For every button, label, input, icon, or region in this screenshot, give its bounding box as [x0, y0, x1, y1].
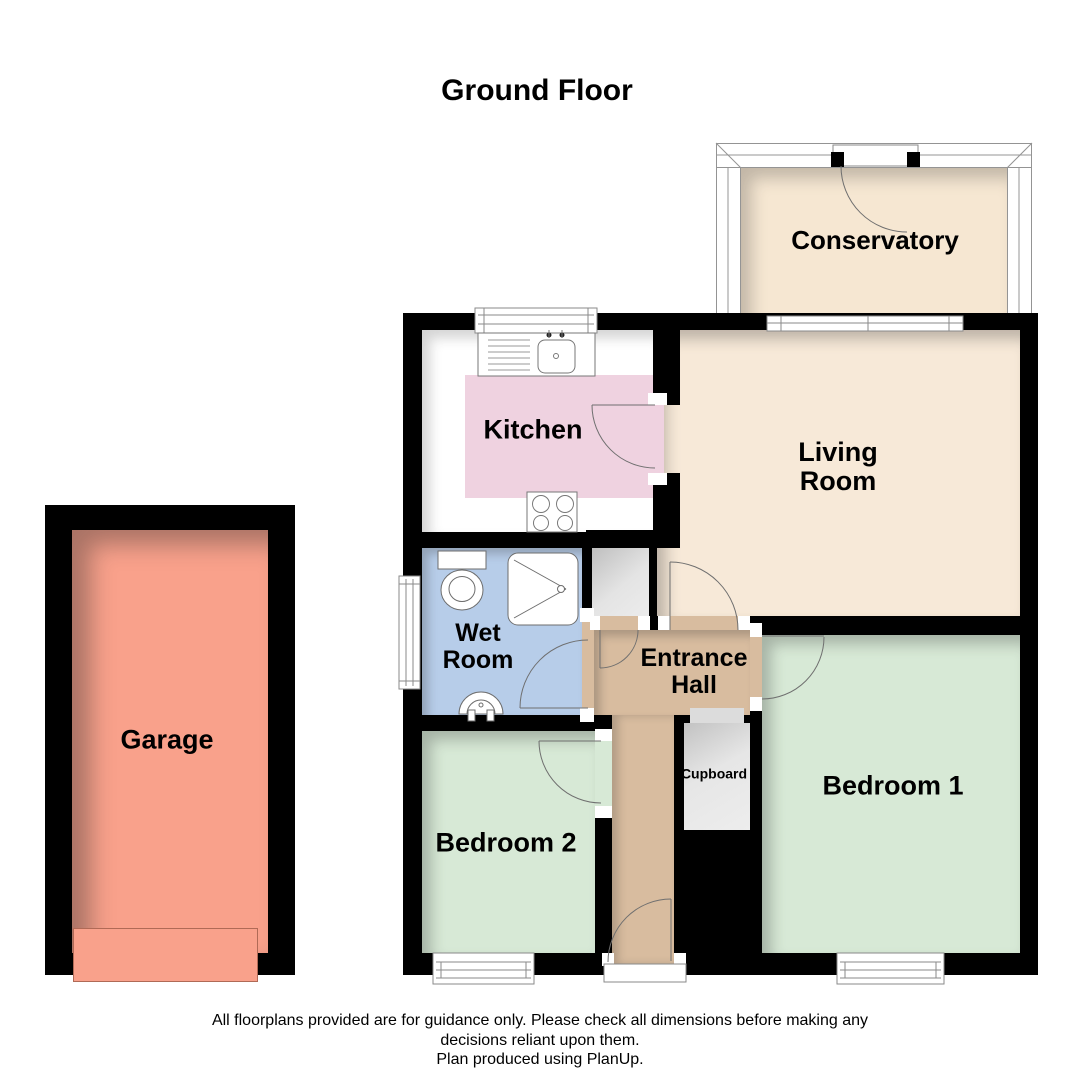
bedroom1-window [837, 953, 944, 984]
front-door-step [604, 964, 686, 982]
wet-room-label-line2: Room [443, 647, 514, 674]
kitchen-window [475, 308, 597, 333]
living-room-label: Living Room [798, 438, 878, 496]
bedroom2-door [539, 741, 601, 803]
bedroom1-label: Bedroom 1 [822, 771, 963, 800]
wet-room-label: Wet Room [443, 620, 514, 674]
sink-counter-icon [478, 330, 595, 376]
kitchen-label: Kitchen [483, 415, 582, 444]
kitchen-door [592, 405, 655, 468]
entrance-hall-label-line1: Entrance [641, 645, 748, 672]
toilet-icon [438, 551, 486, 610]
entrance-hall-label: Entrance Hall [641, 645, 748, 699]
living-room-label-line2: Room [798, 467, 878, 496]
disclaimer-line1: All floorplans provided are for guidance… [0, 1011, 1080, 1031]
garage-label: Garage [120, 725, 213, 754]
wet-room-window [399, 576, 420, 689]
fixtures-overlay [0, 0, 1080, 1080]
living-room-label-line1: Living [798, 438, 878, 467]
bedroom2-label: Bedroom 2 [435, 828, 576, 857]
basin-icon [459, 692, 503, 721]
disclaimer-line2: decisions reliant upon them. [0, 1031, 1080, 1051]
front-door [608, 899, 671, 962]
conservatory-label: Conservatory [791, 226, 959, 254]
living-room-door [670, 562, 738, 630]
bedroom1-door [762, 636, 824, 699]
conservatory-door [831, 145, 920, 232]
shower-icon [508, 553, 578, 625]
entrance-hall-label-line2: Hall [641, 672, 748, 699]
hob-icon [527, 492, 577, 532]
bedroom2-window [433, 953, 534, 984]
cupboard-label: Cupboard [681, 766, 747, 781]
disclaimer-line3: Plan produced using PlanUp. [0, 1050, 1080, 1070]
floorplan-canvas: Ground Floor [0, 0, 1080, 1080]
store-door [600, 630, 638, 668]
wet-room-door [520, 640, 588, 708]
disclaimer: All floorplans provided are for guidance… [0, 1011, 1080, 1070]
wet-room-label-line1: Wet [443, 620, 514, 647]
patio-window [767, 316, 963, 331]
